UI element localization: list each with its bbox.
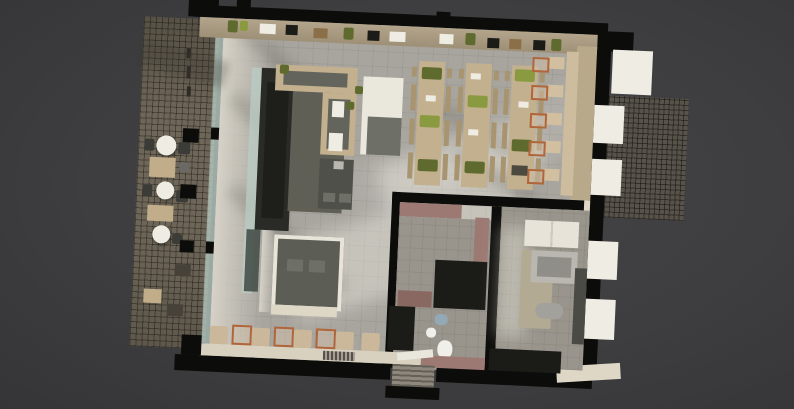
wc-vanity: [397, 290, 432, 308]
render-canvas: Top-down 3D rendered floor plan of a caf…: [0, 0, 794, 409]
bench-cushion: [209, 326, 228, 345]
espresso-machine: [259, 24, 275, 35]
bench-table: [273, 327, 294, 348]
facade-column: [182, 128, 199, 143]
bar-glass-lower: [244, 229, 261, 292]
banquette-table: [546, 113, 563, 126]
coffee-machine: [389, 31, 405, 42]
banquette-chair: [527, 169, 545, 185]
glass-facade-post: [211, 127, 220, 139]
bench-cushion: [251, 328, 270, 347]
wall-pillar-nub: [570, 22, 586, 33]
terrace-mat: [167, 304, 184, 317]
pit-mat: [309, 260, 326, 273]
banquette-table: [547, 85, 564, 98]
place-setting: [468, 129, 478, 135]
counter-equipment: [367, 30, 379, 41]
facade-column: [180, 240, 195, 253]
counter-plant: [346, 102, 354, 110]
wc-sink: [434, 314, 447, 326]
floor-grille: [323, 351, 355, 361]
banquette-table: [548, 57, 565, 70]
counter-plant: [240, 21, 248, 31]
table-planter: [464, 161, 485, 174]
kitchen-counter-white: [524, 220, 579, 248]
terrace-square-table: [149, 157, 176, 178]
storage-block: [433, 260, 487, 310]
terrace-mat: [174, 264, 191, 277]
kitchen-drum: [535, 302, 564, 319]
terrace-square-table: [147, 205, 174, 222]
facade-column: [180, 184, 197, 199]
window-sill: [593, 105, 625, 144]
pavement-text-mark: [187, 86, 191, 96]
pit-mat: [287, 259, 304, 272]
banquette-chair: [531, 85, 549, 101]
banquette-table: [543, 169, 560, 182]
banquette-chair: [529, 113, 547, 129]
counter-plant: [228, 20, 239, 32]
service-mat: [323, 193, 335, 203]
glass-facade-post: [205, 241, 214, 253]
place-setting: [471, 73, 481, 79]
bench-cushion: [361, 333, 380, 352]
terrace-chair: [179, 162, 189, 172]
lounge-pit: [271, 234, 344, 311]
terrace-small-table: [143, 289, 162, 304]
bench-table: [315, 328, 336, 349]
counter-equipment: [285, 25, 297, 36]
terrace-chair: [142, 184, 153, 196]
storage-block-small: [387, 306, 415, 351]
window-sill: [584, 299, 616, 340]
service-counter-surface: [283, 71, 348, 88]
banquette-table: [544, 141, 561, 154]
bench-cushion: [335, 331, 354, 350]
counter-crate: [313, 28, 327, 39]
wall-pillar-nub: [237, 0, 251, 9]
place-setting: [518, 101, 528, 107]
counter-plant: [280, 65, 289, 74]
window-sill: [611, 50, 653, 96]
counter-machine: [439, 34, 453, 45]
terrace-chair: [178, 142, 191, 155]
window-sill: [587, 241, 619, 280]
counter-equipment: [487, 38, 499, 49]
wall-top-corner-left: [188, 0, 219, 18]
window-sill: [591, 159, 623, 196]
wall-pillar-nub: [436, 12, 450, 23]
counter-crate: [509, 39, 521, 50]
cash-register: [332, 101, 345, 118]
table-planter: [419, 115, 440, 128]
counter-appliance: [333, 161, 343, 169]
bench-cushion: [293, 329, 312, 348]
banquette-chair: [528, 141, 546, 157]
under-counter-fridge: [328, 133, 343, 152]
corner-column: [181, 334, 202, 355]
display-island-inset: [366, 117, 402, 157]
wc-bidet: [426, 327, 436, 337]
place-setting: [426, 95, 436, 101]
counter-plant: [551, 39, 562, 51]
terrace-chair: [144, 138, 155, 150]
bench-table: [231, 325, 252, 346]
service-mat: [339, 193, 351, 203]
table-planter: [422, 67, 443, 80]
banquette-chair: [532, 57, 550, 73]
table-tray: [511, 165, 527, 176]
counter-plant: [343, 27, 354, 39]
counter-plant: [465, 33, 476, 45]
entrance-doormat: [392, 364, 435, 388]
kitchen-counter-dark: [488, 348, 561, 373]
kitchen-appliance-top: [537, 256, 572, 278]
entrance-step: [385, 386, 439, 400]
table-planter: [417, 159, 438, 172]
table-planter: [467, 95, 488, 108]
floor-plan: [119, 0, 677, 409]
counter-equipment: [533, 40, 545, 51]
